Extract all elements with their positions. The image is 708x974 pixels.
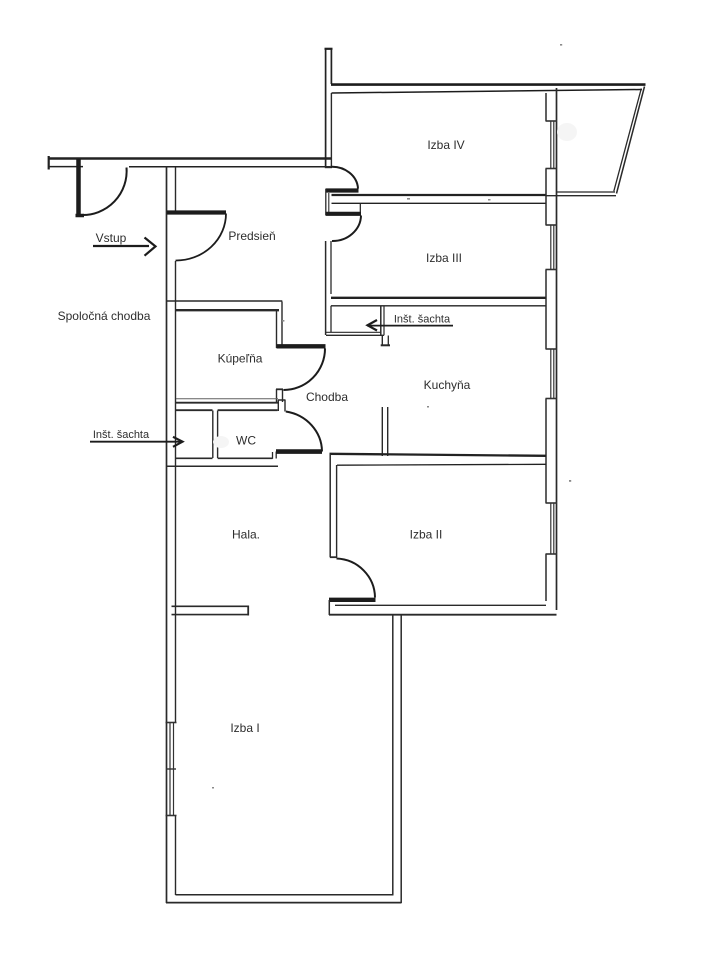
svg-text:WC: WC xyxy=(236,434,256,448)
svg-text:Hala.: Hala. xyxy=(232,528,260,542)
svg-text:Kúpeľňa: Kúpeľňa xyxy=(218,352,263,366)
svg-text:Kuchyňa: Kuchyňa xyxy=(424,378,471,392)
svg-text:Izba III: Izba III xyxy=(426,251,462,265)
svg-text:Izba IV: Izba IV xyxy=(427,138,464,152)
svg-text:Vstup: Vstup xyxy=(96,231,127,245)
svg-text:Predsieň: Predsieň xyxy=(228,229,275,243)
svg-text:Izba II: Izba II xyxy=(410,528,443,542)
svg-text:Spoločná chodba: Spoločná chodba xyxy=(58,309,151,323)
svg-text:Chodba: Chodba xyxy=(306,390,348,404)
svg-text:Izba I: Izba I xyxy=(230,721,259,735)
svg-text:Inšt. šachta: Inšt. šachta xyxy=(394,314,451,326)
svg-text:Inšt. šachta: Inšt. šachta xyxy=(93,429,150,441)
